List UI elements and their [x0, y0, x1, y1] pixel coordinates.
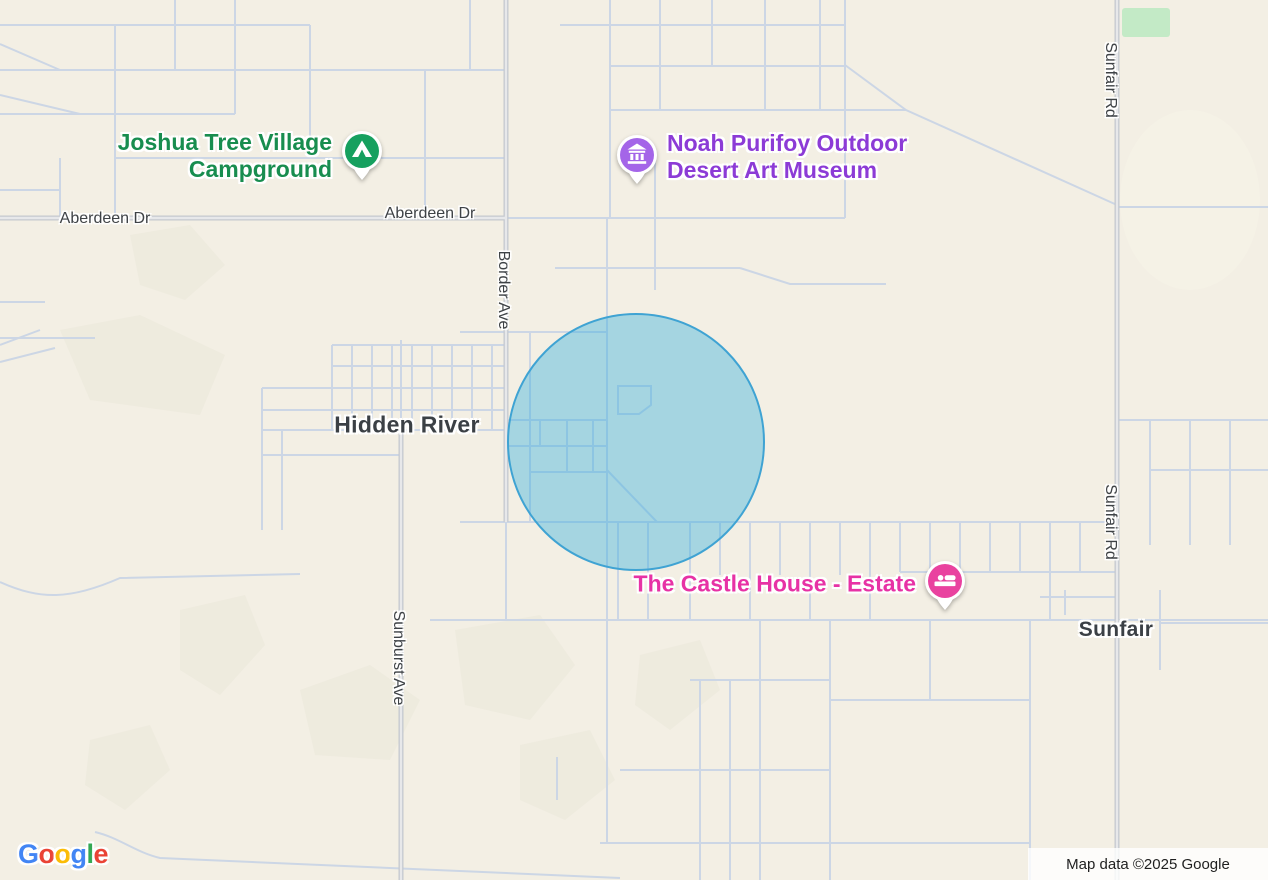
map-canvas[interactable]: Aberdeen DrAberdeen DrBorder AveSunburst… — [0, 0, 1268, 880]
poi-label-museum[interactable]: Noah Purifoy OutdoorDesert Art Museum — [667, 130, 907, 184]
google-logo-letter: o — [55, 839, 71, 869]
road-label: Aberdeen Dr — [385, 205, 476, 223]
poi-label-lodging[interactable]: The Castle House - Estate — [634, 571, 916, 598]
place-label: Hidden River — [334, 412, 479, 439]
google-logo-letter: e — [94, 839, 109, 869]
campground-pin[interactable] — [339, 128, 385, 184]
google-logo-letter: l — [87, 839, 94, 869]
road-label: Sunfair Rd — [1101, 42, 1119, 118]
google-logo-letter: g — [71, 839, 87, 869]
google-logo-letter: o — [39, 839, 55, 869]
google-logo[interactable]: Google — [18, 839, 108, 870]
road-label: Aberdeen Dr — [60, 210, 151, 228]
road-label: Border Ave — [494, 251, 512, 330]
attribution-bar: Map data ©2025 Google — [1028, 848, 1268, 880]
road-label: Sunfair Rd — [1101, 484, 1119, 560]
attribution-text: Map data ©2025 Google — [1066, 856, 1230, 873]
poi-label-campground[interactable]: Joshua Tree VillageCampground — [118, 129, 332, 183]
lodging-pin[interactable] — [922, 558, 968, 614]
road-label: Sunburst Ave — [389, 611, 407, 706]
museum-pin[interactable] — [614, 132, 660, 188]
place-label: Sunfair — [1079, 618, 1153, 642]
google-logo-letter: G — [18, 839, 39, 869]
